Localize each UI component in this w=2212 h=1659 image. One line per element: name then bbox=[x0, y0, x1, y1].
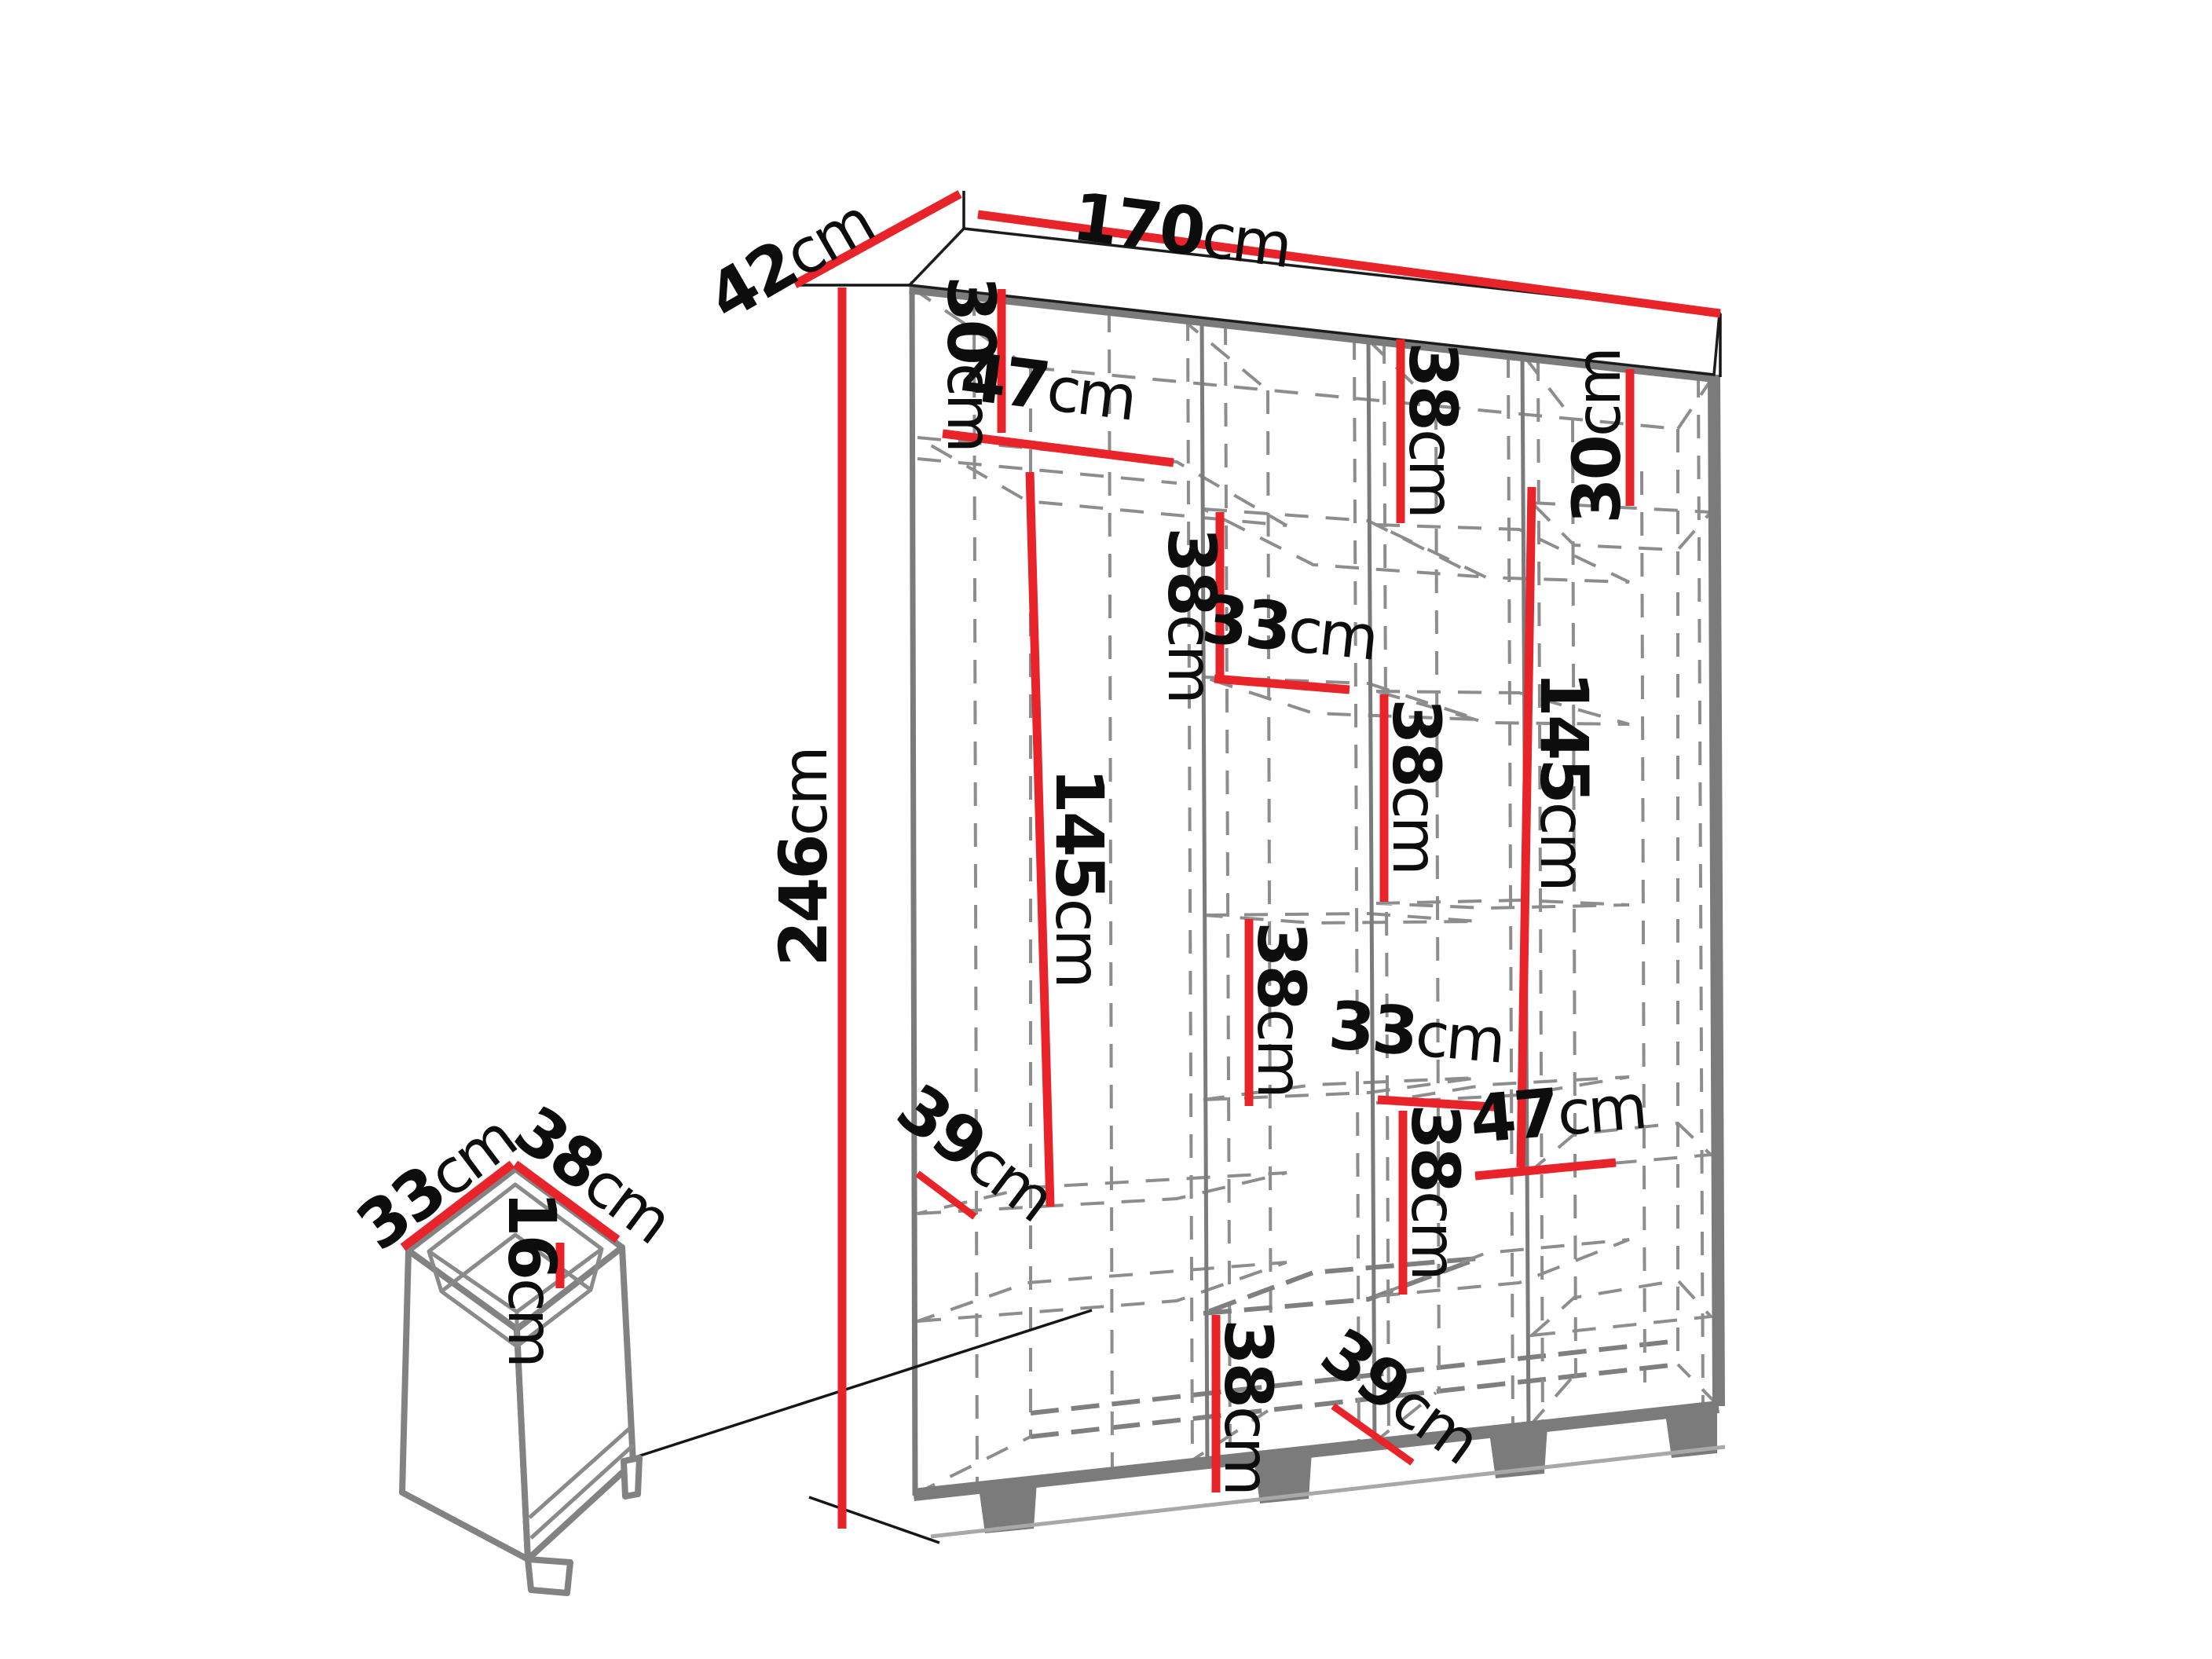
dim-unit: cm bbox=[1564, 350, 1635, 437]
svg-text:246cm: 246cm bbox=[765, 749, 842, 966]
svg-text:42cm: 42cm bbox=[695, 182, 884, 336]
svg-text:38cm: 38cm bbox=[1378, 698, 1455, 873]
dim-col2-middle-label: 38cm bbox=[1243, 921, 1320, 1096]
dim-unit: cm bbox=[1285, 595, 1379, 674]
svg-text:38cm: 38cm bbox=[1397, 1104, 1474, 1278]
dim-unit: cm bbox=[771, 749, 841, 836]
dim-unit: cm bbox=[1526, 802, 1597, 889]
dim-unit: cm bbox=[494, 1278, 565, 1365]
diagram-page: 170cm 42cm 246cm 30cm 47cm 145cm 39cm 38… bbox=[0, 0, 2212, 1659]
dim-unit: cm bbox=[1243, 1009, 1314, 1096]
svg-text:38cm: 38cm bbox=[1210, 1319, 1287, 1493]
dim-unit: cm bbox=[1042, 899, 1112, 986]
dim-unit: cm bbox=[1210, 1406, 1281, 1493]
drawer-front-foot bbox=[528, 1559, 570, 1593]
drawer-side-foot bbox=[624, 1458, 639, 1496]
dim-value: 33 bbox=[1199, 580, 1294, 666]
dim-value: 16 bbox=[493, 1191, 570, 1278]
svg-text:47cm: 47cm bbox=[1467, 1067, 1647, 1159]
dim-value: 33 bbox=[1326, 987, 1419, 1071]
dim-value: 38 bbox=[1394, 342, 1471, 429]
dim-value: 30 bbox=[1558, 437, 1635, 524]
dim-col4-top-label: 30cm bbox=[1558, 350, 1635, 524]
dim-total-height-label: 246cm bbox=[765, 749, 842, 966]
carcass-right-edge bbox=[1714, 375, 1719, 1406]
dim-col3-lower-label: 38cm bbox=[1397, 1104, 1474, 1278]
dim-total-depth-label: 42cm bbox=[695, 182, 884, 336]
dim-unit: cm bbox=[1555, 1072, 1647, 1150]
dim-unit: cm bbox=[1043, 354, 1138, 435]
dim-unit: cm bbox=[1198, 200, 1294, 282]
carcass-left-edge bbox=[912, 285, 915, 1496]
wardrobe-dimension-diagram: 170cm 42cm 246cm 30cm 47cm 145cm 39cm 38… bbox=[0, 0, 2212, 1659]
dim-value: 38 bbox=[1210, 1319, 1287, 1406]
dim-col1-hanging-label: 145cm bbox=[1041, 767, 1118, 985]
svg-text:38cm: 38cm bbox=[1243, 921, 1320, 1096]
svg-text:38cm: 38cm bbox=[1394, 342, 1471, 516]
dim-col3-top-label: 38cm bbox=[1394, 342, 1471, 516]
dim-value: 145 bbox=[1041, 767, 1118, 898]
dim-col4-shelf-width-label: 47cm bbox=[1467, 1067, 1647, 1159]
dim-value: 246 bbox=[765, 836, 842, 966]
dim-value: 38 bbox=[1378, 698, 1455, 786]
dim-value: 38 bbox=[1243, 921, 1320, 1009]
dim-value: 38 bbox=[1397, 1104, 1474, 1191]
dim-value: 47 bbox=[956, 338, 1052, 425]
extension-line bbox=[809, 1497, 939, 1543]
dim-col2-bottom-label: 38cm bbox=[1210, 1319, 1287, 1493]
dim-value: 47 bbox=[1467, 1074, 1561, 1158]
dim-unit: cm bbox=[1412, 999, 1505, 1077]
svg-text:30cm: 30cm bbox=[1558, 350, 1635, 524]
svg-text:145cm: 145cm bbox=[1041, 767, 1118, 985]
dim-col4-hanging-label: 145cm bbox=[1525, 671, 1602, 888]
dim-col3-upper-label: 38cm bbox=[1378, 698, 1455, 873]
svg-text:145cm: 145cm bbox=[1525, 671, 1602, 888]
svg-text:16cm: 16cm bbox=[493, 1191, 570, 1365]
dim-unit: cm bbox=[1397, 1191, 1468, 1278]
dim-drawer-height-label: 16cm bbox=[493, 1191, 570, 1365]
dim-unit: cm bbox=[1379, 786, 1449, 873]
dim-unit: cm bbox=[1395, 429, 1466, 516]
dim-value: 145 bbox=[1525, 671, 1602, 801]
